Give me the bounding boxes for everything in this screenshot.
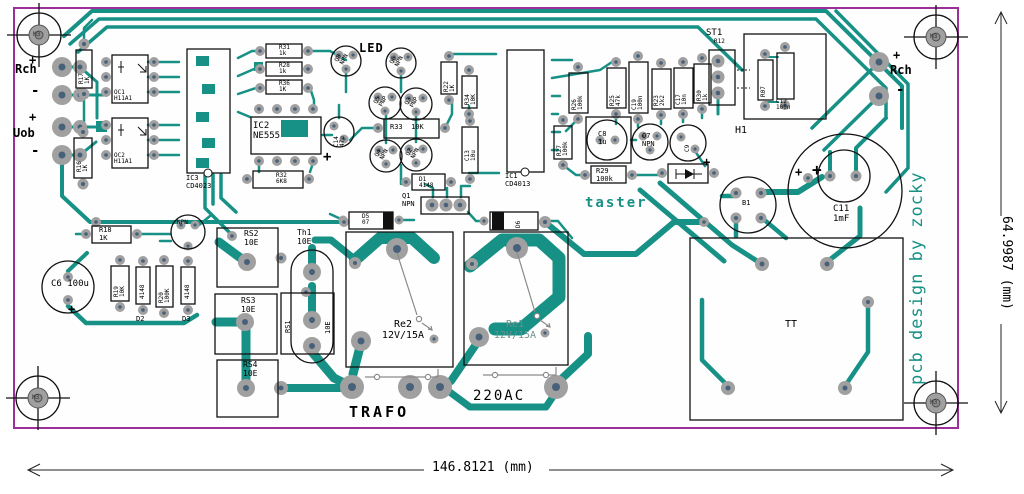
label-c11: C11 1mF (833, 205, 849, 224)
pad-hole (866, 300, 870, 304)
pad-hole (257, 159, 261, 163)
pad-hole (614, 112, 618, 116)
label-rs3: RS3 10E (241, 297, 255, 314)
pad-hole (476, 334, 483, 341)
polarity-plus: + (795, 166, 802, 179)
pad-hole (383, 109, 386, 112)
label-c14: C14 47u (334, 136, 347, 147)
pad-hole (94, 220, 98, 224)
pad-hole (118, 305, 122, 309)
pad-hole (443, 126, 447, 130)
pad-hole (712, 171, 716, 175)
pad-hole (659, 61, 663, 65)
pad-hole (245, 177, 249, 181)
label-r29: R29 100k (596, 168, 613, 183)
pad-hole (348, 383, 356, 391)
io-left-bot-label: Uob (13, 127, 35, 140)
label-r07: R07 (761, 86, 767, 97)
pad-hole (258, 67, 262, 71)
label-r22: R22 1K (444, 81, 457, 92)
pad-hole (82, 92, 86, 96)
pad-hole (716, 75, 721, 80)
pad-hole (482, 219, 485, 222)
label-d2: D2 (136, 316, 144, 324)
copper-fill (202, 138, 215, 148)
pad-hole (679, 135, 682, 138)
pad-hole (393, 245, 401, 253)
pad-hole (406, 55, 409, 58)
diode-band (383, 212, 393, 229)
label-d3-value: 4148 (185, 285, 191, 299)
pad-hole (583, 173, 587, 177)
label-r20: R20 100K (159, 289, 172, 303)
copper-fill (196, 112, 209, 122)
label-r31: R31 1k (279, 45, 290, 58)
label-q9: NPN (177, 220, 188, 226)
label-ic3: IC3 CD4023 (186, 175, 211, 190)
pad-hole (104, 153, 108, 157)
label-oc2: OC2 H11A1 (114, 153, 132, 166)
label-r26: R26 100k (572, 96, 585, 110)
relay-switch-contact (543, 372, 548, 377)
pad-hole (82, 42, 86, 46)
pad-hole (716, 59, 721, 64)
pad-hole (693, 147, 696, 150)
pad-hole (309, 269, 315, 275)
pad-hole (84, 232, 88, 236)
label-r36: R36 1K (279, 81, 290, 94)
label-r23: R23 2k2 (654, 95, 667, 106)
label-trafo: TRAFO (349, 404, 409, 420)
pad-hole (576, 117, 580, 121)
pad-hole (613, 138, 616, 141)
label-r12: R12 (714, 39, 725, 45)
io-left-bot-plus: + (29, 111, 36, 124)
pad-hole (876, 93, 883, 100)
pad-hole (104, 60, 108, 64)
pad-hole (470, 262, 474, 266)
pad-hole (59, 92, 66, 99)
label-r28: R28 1k (279, 63, 290, 76)
pad-hole (447, 54, 451, 58)
label-r32: R32 6K8 (276, 173, 287, 186)
label-c17: C17 10n (676, 94, 689, 105)
pad-hole (186, 244, 189, 247)
label-c12: C12 100n (776, 99, 790, 112)
pad-hole (306, 67, 310, 71)
pad-hole (258, 86, 262, 90)
label-r19: R19 10K (114, 286, 127, 297)
pad-hole (275, 107, 279, 111)
pad-hole (630, 173, 634, 177)
pad-hole (636, 117, 640, 121)
pad-hole (309, 343, 315, 349)
pad-hole (406, 383, 414, 391)
label-c9: C9 (685, 145, 691, 152)
pad-hole (561, 163, 565, 167)
pad-hole (152, 153, 156, 157)
pad-hole (391, 148, 394, 151)
pad-hole (444, 203, 449, 208)
pad-hole (311, 159, 315, 163)
copper-fill (196, 158, 209, 168)
pad-hole (81, 182, 85, 186)
io-left-top-label: Rch (15, 63, 37, 76)
dimension-width-label: 146.8121 (mm) (432, 461, 534, 475)
io-left-bot-minus: - (31, 144, 39, 159)
pad-hole (543, 220, 547, 224)
label-r33: R33 10K (390, 124, 424, 132)
pad-hole (141, 259, 145, 263)
pad-hole (513, 244, 521, 252)
pad-hole (307, 177, 311, 181)
pad-hole (726, 386, 731, 391)
copper-fill (202, 84, 215, 94)
pad-hole (854, 174, 858, 178)
label-ic2: IC2 NE555 (253, 122, 280, 141)
io-right-plus: + (893, 49, 900, 62)
pad-hole (59, 64, 66, 71)
pad-hole (468, 177, 472, 181)
pad-hole (293, 107, 297, 111)
pad-hole (421, 96, 424, 99)
pad-hole (783, 45, 787, 49)
pad-hole (353, 261, 357, 265)
label-q7: Q7 NPN (642, 133, 655, 148)
pcb-canvas (0, 0, 1024, 494)
mounting-hole-label: M3 (32, 395, 39, 401)
label-tt: TT (785, 320, 797, 331)
label-d6: D6 (516, 221, 522, 228)
pad-hole (193, 223, 196, 226)
pad-hole (358, 338, 365, 345)
pad-hole (828, 174, 832, 178)
pad-hole (59, 152, 66, 159)
pad-hole (152, 75, 156, 79)
pad-hole (152, 90, 156, 94)
pad-hole (430, 203, 435, 208)
polarity-plus: + (812, 161, 822, 178)
pad-hole (152, 123, 156, 127)
dimension-height-label: 64.9987 (mm) (999, 216, 1013, 310)
pad-hole (404, 180, 408, 184)
pad-hole (843, 386, 848, 391)
pad-hole (561, 118, 565, 122)
pad-hole (458, 203, 463, 208)
pad-hole (257, 107, 261, 111)
label-r18: R18 1K (99, 227, 112, 242)
label-h1: H1 (735, 126, 747, 137)
label-220ac: 220AC (473, 389, 525, 404)
label-rs1-value: 10E (325, 321, 333, 334)
polarity-plus: + (703, 156, 710, 169)
copper-fill (196, 56, 209, 66)
pad-hole (397, 218, 400, 221)
pad-hole (104, 75, 108, 79)
pad-hole (78, 153, 83, 158)
pad-hole (763, 104, 767, 108)
pad-hole (552, 383, 560, 391)
pad-hole (258, 49, 262, 53)
pad-hole (311, 107, 315, 111)
pad-hole (244, 259, 250, 265)
pad-hole (376, 126, 380, 130)
pad-hole (806, 176, 810, 180)
pad-hole (344, 67, 347, 70)
pad-hole (332, 124, 335, 127)
label-c6: C6 100u (51, 280, 89, 290)
pad-hole (384, 162, 387, 165)
pad-hole (825, 262, 830, 267)
label-re1: Re1 12V/15A (484, 320, 546, 342)
label-c19: C19 100n (632, 96, 645, 110)
pad-hole (759, 216, 763, 220)
pad-hole (467, 112, 471, 116)
pad-hole (467, 68, 471, 72)
pad-hole (162, 258, 166, 262)
pad-hole (468, 119, 472, 123)
pad-hole (414, 110, 417, 113)
polarity-plus: + (68, 303, 75, 316)
pad-hole (186, 259, 190, 263)
credit-text: pcb design by zocky (908, 172, 926, 385)
label-rs2: RS2 10E (244, 230, 258, 247)
pad-hole (104, 138, 108, 142)
relay-switch-contact (425, 374, 430, 379)
pad-hole (152, 60, 156, 64)
pad-hole (152, 138, 156, 142)
relay-switch-contact (492, 372, 497, 377)
label-r25: R25 47k (610, 95, 623, 106)
pad-hole (162, 311, 166, 315)
pad-hole (390, 95, 393, 98)
pad-hole (734, 191, 738, 195)
label-ic1: IC1 CD4013 (505, 173, 530, 188)
pad-hole (436, 383, 444, 391)
mounting-hole-label: M3 (33, 32, 40, 38)
pad-hole (293, 159, 297, 163)
label-rs1: RS1 (285, 320, 293, 333)
pad-hole (576, 65, 580, 69)
pad-hole (659, 113, 663, 117)
label-c13: C13 10u (465, 150, 478, 161)
label-b1: B1 (742, 200, 750, 208)
copper-fill (281, 120, 308, 137)
pad-hole (104, 123, 108, 127)
pad-hole (118, 258, 122, 262)
label-oc1: OC1 H11A1 (114, 90, 132, 103)
relay-switch-contact (374, 374, 379, 379)
io-right-label: Rch (890, 64, 912, 77)
pad-hole (876, 59, 883, 66)
label-re2: Re2 12V/15A (372, 320, 434, 342)
io-left-top-minus: - (31, 84, 39, 99)
mounting-hole-label: M3 (930, 34, 937, 40)
pad-hole (700, 107, 704, 111)
pad-hole (104, 90, 108, 94)
label-q1: Q1 NPN (402, 193, 415, 208)
label-r17: R17 1K (79, 73, 92, 84)
pad-hole (279, 386, 284, 391)
pad-hole (306, 49, 310, 53)
label-th1: Th1 10E (297, 229, 311, 246)
pcb-layout: + Rch - + Uob - + Rch - M3 M3 M3 M3 R17 … (0, 0, 1024, 494)
label-taster: taster (585, 196, 648, 211)
pad-hole (681, 60, 685, 64)
relay-switch-contact (534, 313, 539, 318)
pad-hole (655, 134, 658, 137)
pad-hole (681, 112, 685, 116)
label-d2-value: 4148 (140, 285, 146, 299)
label-rs4: RS4 10E (243, 361, 257, 378)
label-r27: R27 100k (557, 142, 570, 156)
pad-hole (242, 319, 248, 325)
label-r16: R16 1K (77, 161, 90, 172)
pad-hole (716, 91, 721, 96)
mounting-hole-label: M3 (930, 400, 937, 406)
label-d5: D5 07 (362, 214, 369, 227)
pad-hole (81, 130, 85, 134)
pad-hole (414, 161, 417, 164)
pad-hole (141, 308, 145, 312)
pad-hole (447, 98, 451, 102)
pad-hole (636, 54, 640, 58)
label-r34: R34 10K (465, 94, 478, 105)
pad-hole (702, 220, 706, 224)
pad-hole (342, 220, 346, 224)
label-d1: D1 4148 (419, 177, 433, 190)
pad-hole (186, 308, 190, 312)
pad-hole (306, 86, 310, 90)
pad-hole (59, 124, 66, 131)
label-c8: C8 1u (598, 131, 606, 146)
pad-hole (614, 60, 618, 64)
polarity-plus: + (323, 150, 331, 165)
label-r30: R30 1k (697, 90, 710, 101)
pad-hole (449, 180, 453, 184)
pad-hole (399, 69, 402, 72)
label-d3: D3 (182, 316, 190, 324)
pad-hole (243, 385, 249, 391)
pad-hole (660, 171, 664, 175)
pad-hole (351, 53, 354, 56)
pad-hole (648, 148, 651, 151)
label-led: LED (359, 42, 384, 55)
io-right-minus: - (896, 83, 904, 98)
pad-hole (734, 216, 738, 220)
pad-hole (135, 232, 139, 236)
pad-hole (759, 191, 763, 195)
pad-hole (230, 234, 234, 238)
diode-band (492, 212, 504, 230)
pad-hole (275, 159, 279, 163)
pad-hole (700, 56, 704, 60)
pad-hole (309, 317, 315, 323)
pad-hole (760, 262, 765, 267)
pad-hole (763, 52, 767, 56)
pad-hole (78, 65, 83, 70)
pad-hole (279, 256, 283, 260)
